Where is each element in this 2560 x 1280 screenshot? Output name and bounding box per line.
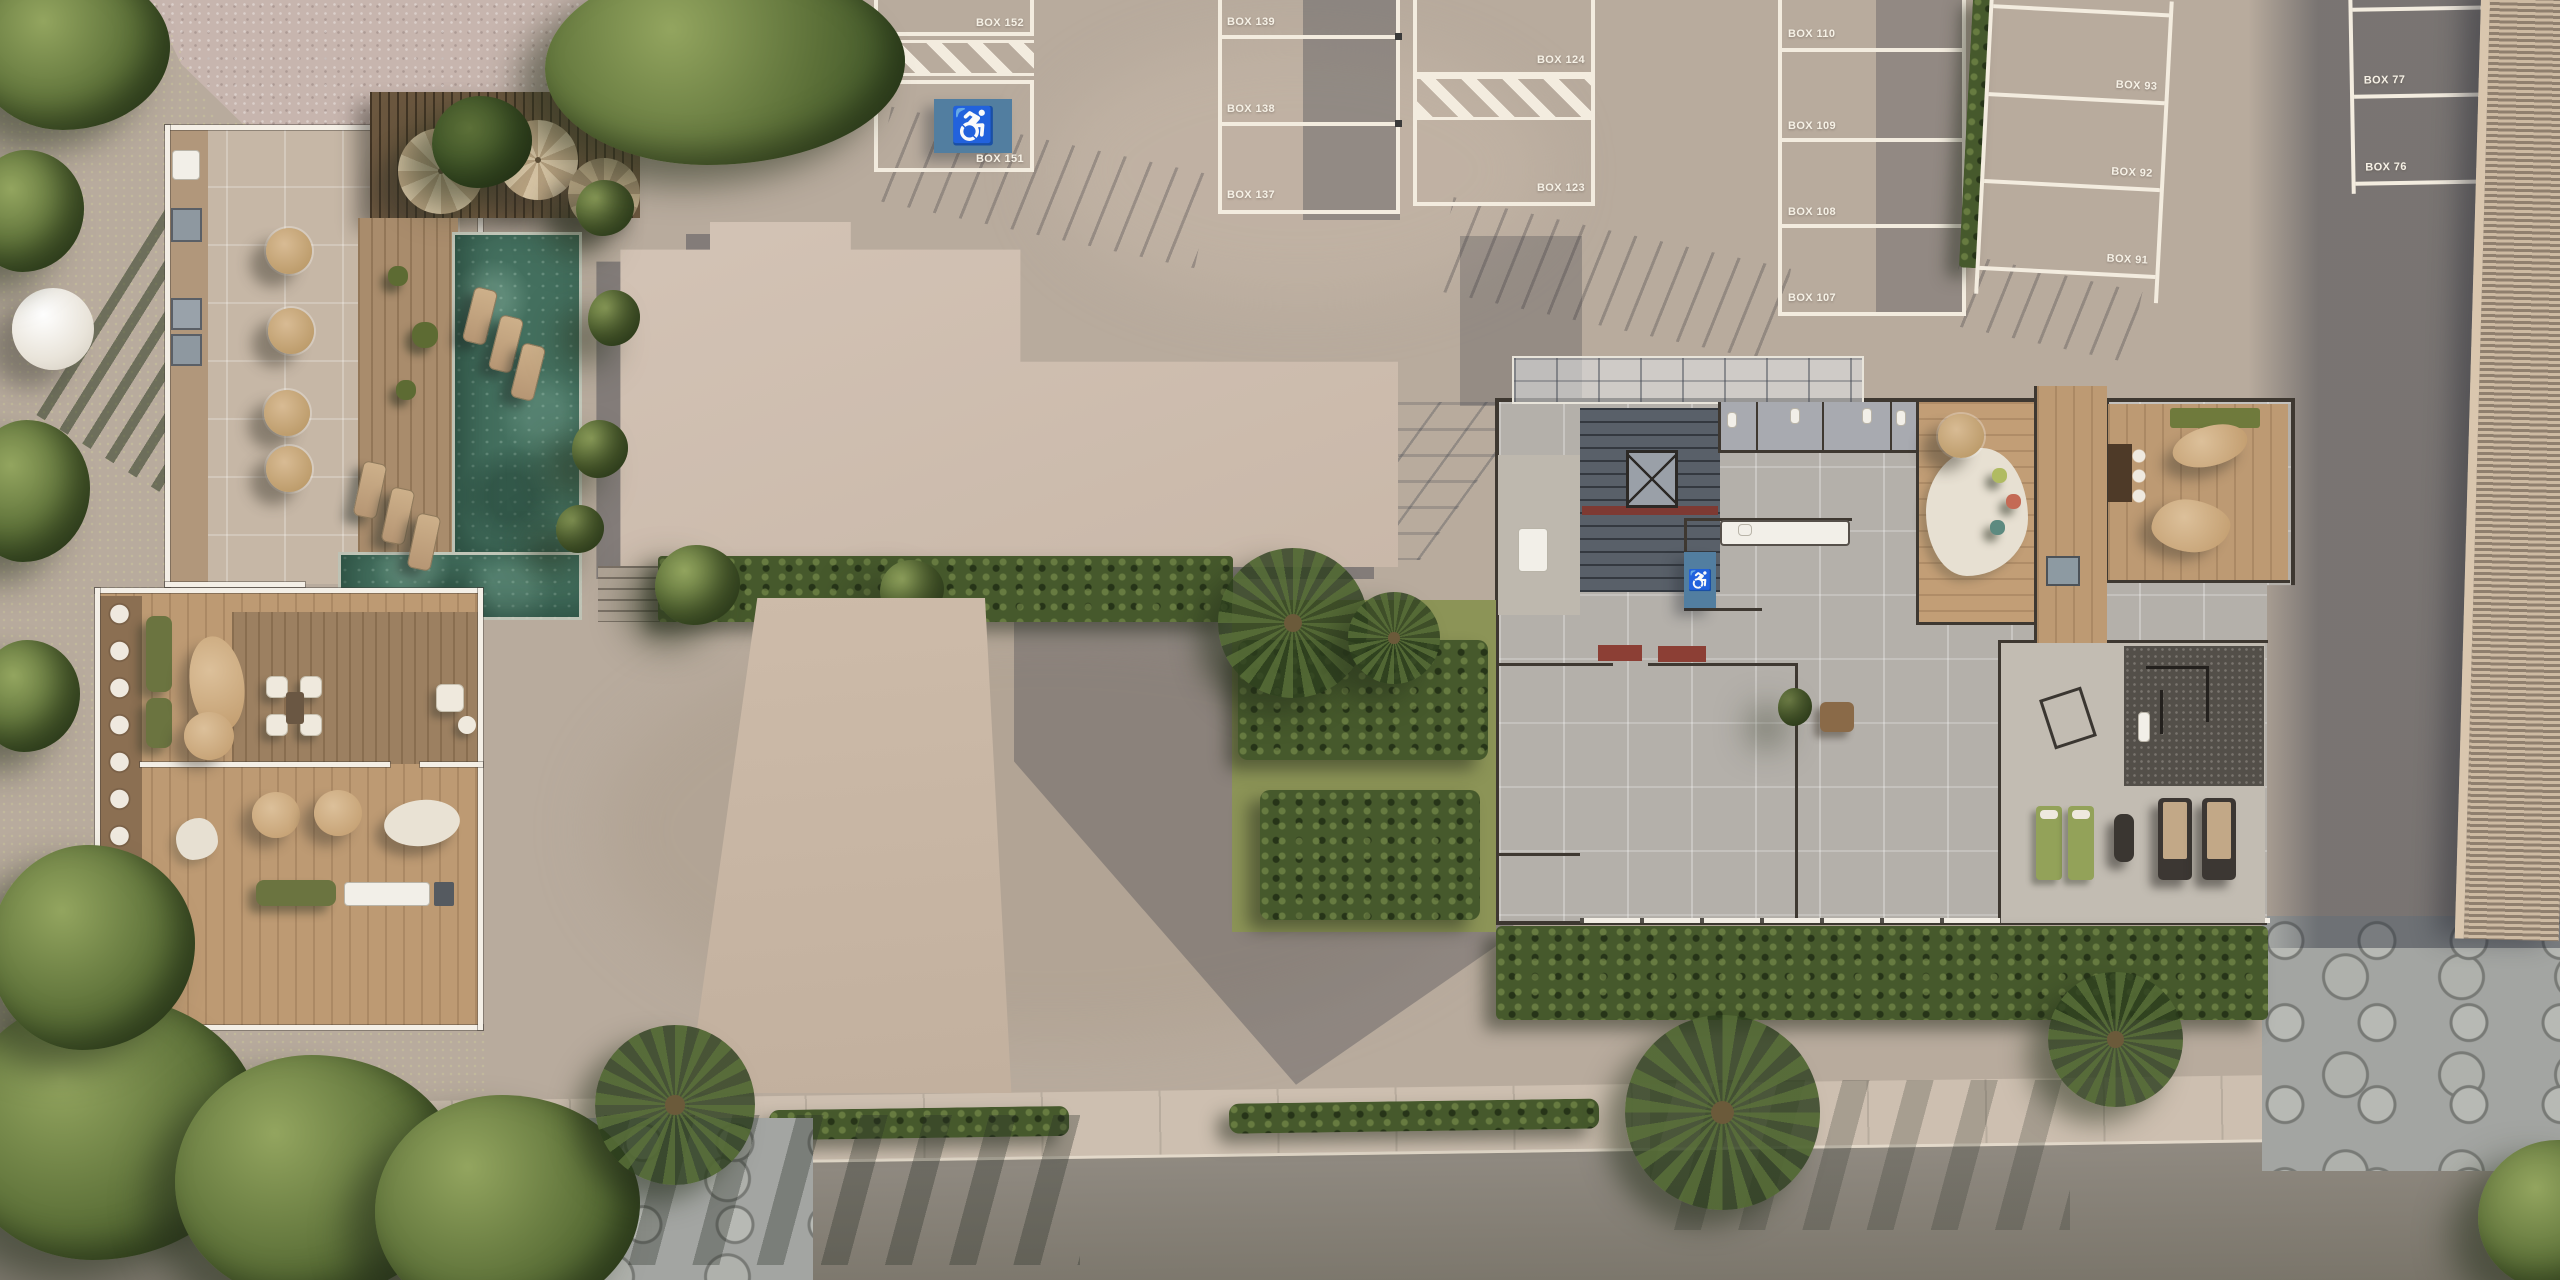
cable-machine-frame — [2146, 666, 2208, 669]
toilet — [1862, 408, 1872, 424]
parking-box-label: BOX 137 — [1227, 189, 1275, 201]
counter-appliance — [172, 150, 200, 180]
lounge-armchair — [436, 684, 464, 712]
parking-box-label: BOX 152 — [976, 17, 1024, 29]
storage-desk — [1518, 528, 1548, 572]
parking-box-label: BOX 138 — [1227, 103, 1275, 115]
stall-divider — [1782, 224, 1962, 228]
stall-divider — [1782, 48, 1962, 52]
parking-box-label: BOX 123 — [1537, 182, 1585, 194]
round-table — [252, 792, 300, 838]
treadmill — [2158, 798, 2192, 880]
toilet — [1790, 408, 1800, 424]
bar-island — [2108, 444, 2132, 502]
no-parking-hatch-zone — [1417, 76, 1591, 120]
stall-divider — [1989, 92, 2165, 105]
parking-box-label: BOX 92 — [2111, 166, 2153, 180]
lounge-armchair — [266, 714, 288, 736]
palm-tree-street — [595, 1025, 755, 1185]
interior-wall — [2106, 580, 2290, 583]
parking-box-label: BOX 77 — [2364, 74, 2406, 87]
party-room-divider-wall — [140, 762, 390, 767]
lounge-armchair — [266, 676, 288, 698]
wheelchair-icon: ♿ — [951, 105, 996, 147]
party-room-wall — [478, 588, 483, 1030]
play-cushion — [2006, 494, 2021, 509]
cable-machine-frame — [2160, 690, 2163, 734]
terrace-dining-table — [268, 308, 314, 354]
interior-wall — [1495, 853, 1580, 856]
stone-plaza-right — [2262, 916, 2560, 1171]
palm-tree-street — [2048, 972, 2183, 1107]
toilet — [1727, 412, 1737, 428]
parking-box-label: BOX 124 — [1537, 54, 1585, 66]
parking-box-label: BOX 139 — [1227, 16, 1275, 28]
bar-stools — [2130, 446, 2148, 504]
pool-pouf — [412, 322, 438, 348]
entry-plaza-path — [688, 598, 1018, 1093]
green-sofa — [146, 698, 172, 748]
side-table — [458, 716, 476, 734]
interior-wall — [1916, 622, 2036, 625]
terrace-dining-table — [264, 390, 310, 436]
red-door-mat — [1598, 645, 1642, 661]
parking-column-139-137: BOX 139 BOX 138 BOX 137 — [1218, 0, 1400, 214]
cable-machine-frame — [2206, 666, 2209, 722]
party-room-divider-wall — [420, 762, 483, 767]
playroom-round-table — [1938, 414, 1984, 458]
play-cushion — [1990, 520, 2005, 535]
parking-column-110-107: BOX 110 BOX 109 BOX 108 BOX 107 — [1778, 0, 1966, 316]
stall-divider — [1222, 122, 1396, 126]
partition-wall — [1822, 402, 1824, 450]
exterior-stairs — [598, 566, 660, 622]
palm-tree — [1348, 592, 1440, 684]
parking-box-label: BOX 91 — [2106, 252, 2148, 266]
courtyard-bushes — [1260, 790, 1480, 920]
exercise-bike — [2114, 814, 2134, 862]
rail-joint — [1395, 120, 1402, 127]
grill-appliance — [171, 208, 202, 242]
green-sofa — [146, 616, 172, 692]
bench-seat — [2046, 556, 2080, 586]
yoga-mat — [2068, 806, 2094, 880]
stall-divider — [1222, 35, 1396, 39]
large-tree-canopy — [545, 0, 905, 165]
parking-box-label: BOX 110 — [1788, 28, 1835, 40]
poolside-plants — [576, 180, 634, 236]
partition-wall — [1890, 402, 1892, 450]
interior-wall — [1495, 663, 1613, 666]
interior-wall — [1648, 663, 1795, 666]
treadmill — [2202, 798, 2236, 880]
parking-box-label: BOX 93 — [2115, 79, 2157, 93]
interior-wall — [1718, 450, 1918, 453]
palm-tree-street — [1625, 1015, 1820, 1210]
terrace-wall — [165, 125, 170, 587]
interior-wall — [1684, 608, 1762, 611]
stall-divider — [1782, 138, 1962, 142]
parking-stall-box-152: BOX 152 — [874, 0, 1034, 36]
play-cushion — [1992, 468, 2007, 483]
elevator-shaft — [1626, 450, 1678, 508]
red-door-mat — [1658, 646, 1706, 662]
accessible-parking-sign: ♿ — [934, 99, 1012, 153]
refrigerator — [434, 882, 454, 906]
spa-dome-sphere — [12, 288, 94, 370]
parking-stall-box-151-accessible: ♿ BOX 151 — [874, 80, 1034, 172]
round-table — [314, 790, 362, 836]
stall-divider — [1993, 4, 2169, 17]
parking-group-93-91: BOX 93 BOX 92 BOX 91 — [1974, 0, 2174, 303]
coffee-table — [286, 692, 304, 724]
terrace-wall — [165, 582, 305, 587]
site-plan-render: BOX 152 ♿ BOX 151 BOX 139 BOX 138 BOX 13… — [0, 0, 2560, 1280]
yoga-mat — [2036, 806, 2062, 880]
pool-pouf — [396, 380, 416, 400]
terrace-dining-table — [266, 228, 312, 274]
terrace-dining-table — [266, 446, 312, 492]
grill-appliance — [171, 334, 202, 366]
kitchen-counter — [344, 882, 430, 906]
toilet — [1896, 410, 1906, 426]
stall-divider — [1984, 179, 2160, 192]
rail-joint — [1395, 33, 1402, 40]
party-room-wall — [95, 588, 483, 593]
entrance-glass-canopy — [1512, 356, 1864, 404]
parking-box-label: BOX 109 — [1788, 120, 1836, 132]
accessible-wc-mat: ♿ — [1684, 552, 1716, 608]
gym-bench — [2138, 712, 2150, 742]
palm-tree — [1218, 548, 1368, 698]
parking-box-label: BOX 151 — [976, 153, 1024, 165]
wheelchair-icon: ♿ — [1688, 568, 1713, 593]
parking-box-label: BOX 108 — [1788, 206, 1836, 218]
stall-divider — [1979, 266, 2155, 279]
pool-pouf — [388, 266, 408, 286]
partition-wall — [1756, 402, 1758, 450]
parking-column-124-123: BOX 124 BOX 123 — [1413, 0, 1595, 206]
green-sofa-long — [256, 880, 336, 906]
parking-box-label: BOX 76 — [2365, 161, 2407, 174]
parking-box-label: BOX 107 — [1788, 292, 1836, 304]
sidewalk-hedge-strip — [1229, 1099, 1599, 1134]
interior-wall — [1718, 402, 1721, 452]
grill-appliance — [171, 298, 202, 330]
round-dining-table — [184, 712, 234, 760]
leather-sofa — [1820, 702, 1854, 732]
sink — [1738, 524, 1752, 536]
